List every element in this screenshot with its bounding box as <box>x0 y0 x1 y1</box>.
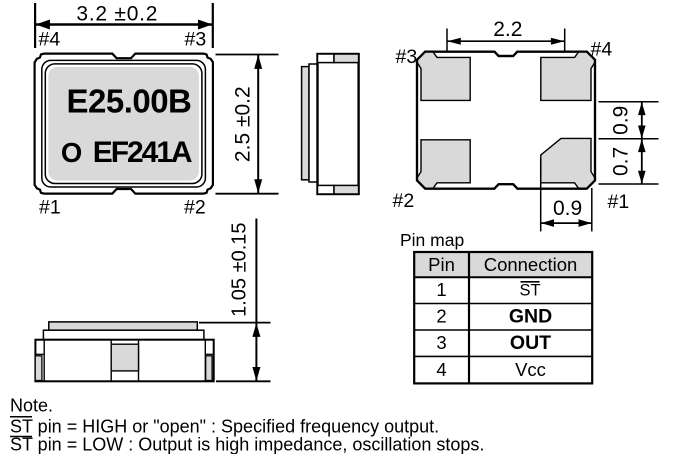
svg-text:#1: #1 <box>39 197 61 219</box>
svg-text:1.05 ±0.15: 1.05 ±0.15 <box>229 223 251 317</box>
svg-text:0.7: 0.7 <box>610 147 633 176</box>
svg-text:#2: #2 <box>393 190 415 212</box>
svg-text:2.5 ±0.2: 2.5 ±0.2 <box>232 86 255 162</box>
svg-text:0.9: 0.9 <box>553 197 582 220</box>
svg-text:3.2 ±0.2: 3.2 ±0.2 <box>76 2 157 25</box>
svg-text:ST pin = LOW : Output is high: ST pin = LOW : Output is high impedance,… <box>10 435 484 454</box>
svg-text:OUT: OUT <box>510 332 551 354</box>
svg-text:4: 4 <box>436 359 446 380</box>
svg-text:#4: #4 <box>39 29 61 51</box>
svg-text:2.2: 2.2 <box>493 18 522 41</box>
svg-text:2: 2 <box>436 306 446 327</box>
svg-text:Vcc: Vcc <box>515 359 546 380</box>
svg-text:ST pin = HIGH or "open" : Spec: ST pin = HIGH or "open" : Specified freq… <box>10 417 439 437</box>
svg-text:O: O <box>61 137 82 168</box>
svg-text:1: 1 <box>436 279 446 300</box>
svg-text:0.9: 0.9 <box>610 106 633 135</box>
svg-text:Note.: Note. <box>10 396 53 416</box>
svg-text:3: 3 <box>436 332 446 353</box>
svg-text:GND: GND <box>509 306 552 328</box>
svg-text:#3: #3 <box>396 46 418 68</box>
svg-text:#3: #3 <box>185 29 207 51</box>
svg-text:Pin map: Pin map <box>400 230 464 250</box>
svg-text:ST: ST <box>519 282 540 300</box>
svg-text:EF241A: EF241A <box>93 136 193 169</box>
svg-text:#1: #1 <box>608 191 630 213</box>
svg-text:#2: #2 <box>184 197 206 219</box>
svg-text:Pin: Pin <box>428 254 455 275</box>
svg-text:E25.00B: E25.00B <box>67 82 192 119</box>
svg-text:Connection: Connection <box>484 254 578 275</box>
